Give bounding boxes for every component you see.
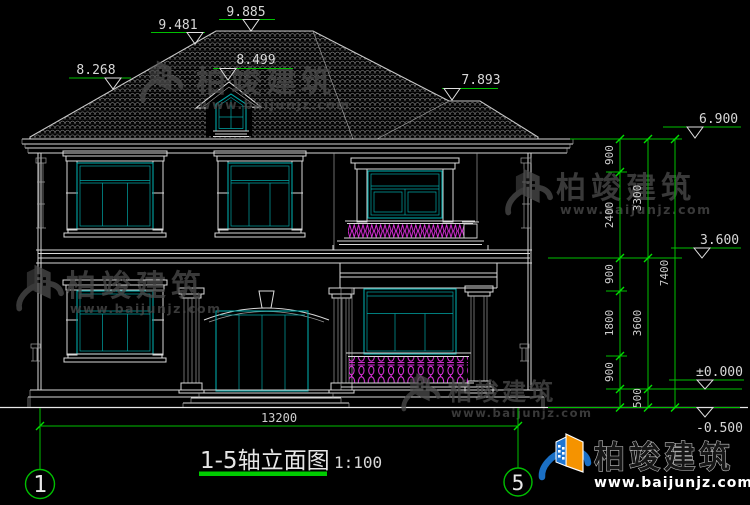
drawing-scale: 1:100 (334, 453, 382, 472)
level-label-site: -0.500 (696, 421, 743, 436)
level-label-ground: ±0.000 (696, 365, 743, 380)
watermark-left: 柏竣建筑 www.baijunjz.com (19, 265, 222, 316)
watermark-url-text: www.baijunjz.com (451, 406, 592, 420)
window-2f-middle (214, 151, 306, 237)
watermark-url-text: www.baijunjz.com (199, 97, 351, 112)
porch (340, 263, 497, 393)
entrance-steps (183, 393, 349, 407)
drawing-title: 1-5轴立面图 (200, 448, 330, 474)
level-marker-ground: ±0.000 (669, 365, 744, 389)
watermark-brand-text: 柏竣建筑 (196, 65, 336, 100)
axis-5-label: 5 (512, 471, 525, 495)
watermark-brand-text: 柏竣建筑 (66, 269, 206, 304)
dim-3300: 3300 (631, 185, 644, 212)
level-label-dormer: 8.499 (236, 53, 275, 68)
dim-3600: 3600 (631, 310, 644, 337)
watermark-logo-icon (508, 169, 550, 213)
width-dimension: 13200 (36, 411, 522, 430)
brand-logo-text: 柏竣建筑 (594, 440, 734, 476)
balcony-balustrade (342, 221, 479, 241)
dim-900-b: 900 (603, 264, 616, 284)
dim-1800: 1800 (603, 310, 616, 337)
porch-window (364, 289, 456, 354)
dimension-texts-col3: 7400 (658, 260, 671, 287)
balcony-slab (333, 241, 488, 250)
brand-logo-icon (542, 434, 588, 477)
dim-2400: 2400 (603, 202, 616, 229)
dim-7400: 7400 (658, 260, 671, 287)
level-label-second-floor: 3.600 (700, 233, 739, 248)
watermark-url-text: www.baijunjz.com (70, 301, 222, 316)
drawing-title-block: 1-5轴立面图 1:100 (199, 448, 382, 476)
level-marker-site: -0.500 (696, 408, 743, 437)
dim-900-c: 900 (603, 362, 616, 382)
axis-1-label: 1 (33, 472, 47, 498)
level-marker-left-slope: 9.481 (151, 18, 205, 44)
level-marker-eave: 6.900 (663, 112, 741, 138)
dim-13200: 13200 (261, 411, 297, 425)
elevation-drawing-canvas: 柏竣建筑 www.baijunjz.com 柏竣建筑 www.baijunjz.… (0, 0, 750, 505)
porch-column (465, 286, 493, 393)
watermark-brand-text: 柏竣建筑 (448, 378, 556, 406)
level-label-ridge: 9.885 (226, 5, 265, 20)
window-2f-left (63, 151, 167, 237)
level-marker-ridge: 9.885 (219, 5, 275, 31)
level-label-left-break: 8.268 (76, 63, 115, 78)
axis-1-bubble: 1 (26, 408, 55, 499)
level-label-right-break: 7.893 (461, 73, 500, 88)
level-label-left-slope: 9.481 (158, 18, 197, 33)
title-underline (199, 472, 327, 477)
brand-logo: 柏竣建筑 www.baijunjz.com (542, 434, 750, 491)
dimension-texts-col2: 3300 3600 500 (631, 185, 644, 408)
level-marker-second-floor: 3.600 (671, 233, 741, 258)
watermark-logo-icon (19, 265, 61, 309)
axis-5-bubble: 5 (504, 408, 532, 496)
floor-band (36, 250, 532, 263)
cad-elevation-viewport: 柏竣建筑 www.baijunjz.com 柏竣建筑 www.baijunjz.… (0, 0, 750, 505)
dim-900-a: 900 (603, 145, 616, 165)
level-label-eave: 6.900 (699, 112, 738, 127)
dim-500: 500 (631, 388, 644, 408)
level-marker-right-break: 7.893 (442, 73, 501, 100)
entrance-arch (204, 291, 329, 322)
balcony-door (351, 158, 459, 222)
entrance-door (216, 311, 308, 391)
brand-logo-url: www.baijunjz.com (594, 475, 750, 491)
